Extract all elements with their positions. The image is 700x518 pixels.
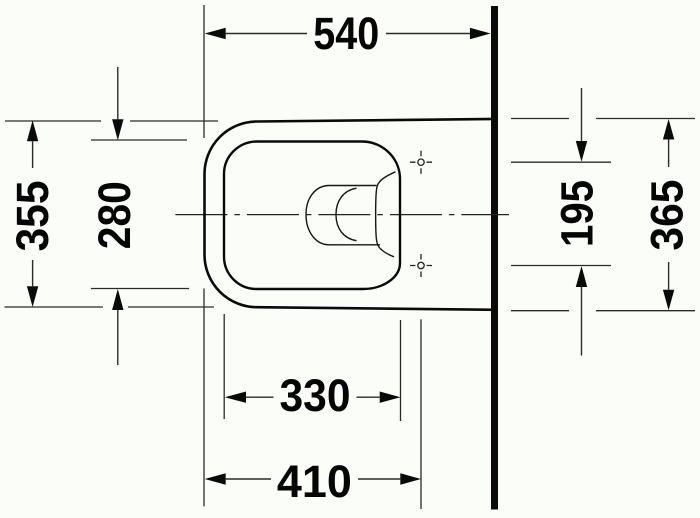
svg-text:330: 330 bbox=[280, 370, 351, 421]
svg-text:355: 355 bbox=[7, 181, 58, 252]
svg-text:410: 410 bbox=[277, 456, 352, 507]
svg-text:195: 195 bbox=[552, 180, 603, 247]
svg-text:280: 280 bbox=[89, 181, 140, 249]
svg-text:540: 540 bbox=[313, 8, 379, 59]
svg-text:365: 365 bbox=[642, 180, 693, 251]
